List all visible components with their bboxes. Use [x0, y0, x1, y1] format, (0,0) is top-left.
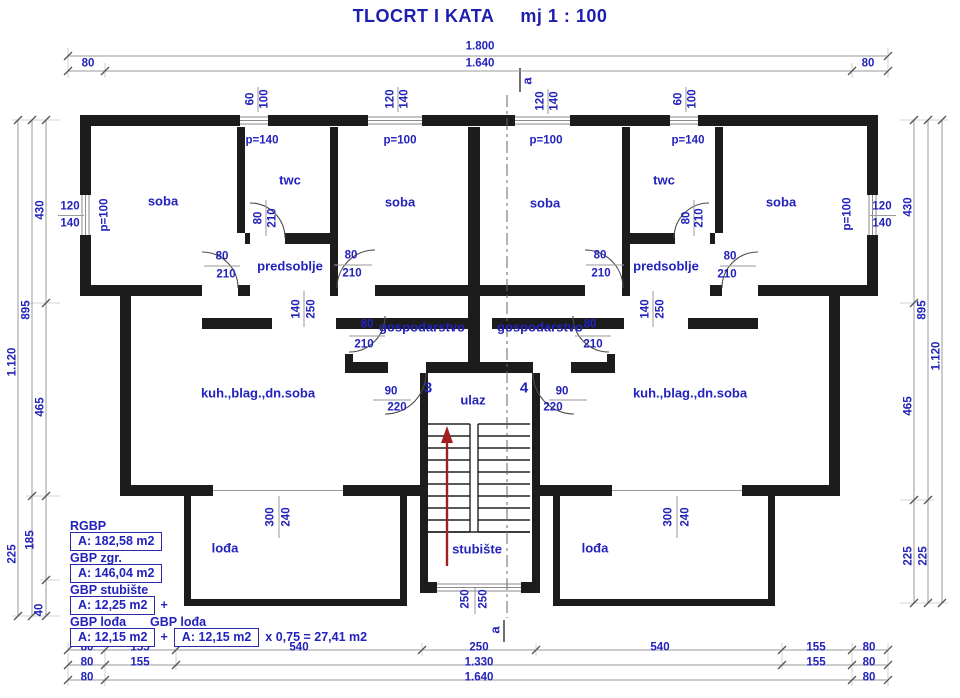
room-lodja-1: lođa	[212, 542, 239, 555]
door-entry4-220: 220	[543, 402, 562, 414]
open-lodja2-300: 300	[663, 507, 675, 526]
win-left-140: 140	[60, 218, 79, 230]
win-soba3-140: 140	[549, 91, 561, 110]
win-twc2-parapet: p=140	[672, 135, 705, 147]
gbp-stubiste-label: GBP stubište	[70, 583, 148, 597]
win-twc1-100: 100	[259, 89, 271, 108]
plus-sign-1: +	[160, 598, 167, 612]
door-soba2-80: 80	[345, 250, 358, 262]
gbp-lodja-label-2: GBP lođa	[150, 615, 206, 629]
room-soba-2: soba	[385, 196, 415, 209]
dim-top-80-r: 80	[862, 58, 875, 70]
apartment-number-3: 3	[424, 381, 432, 396]
apartment-number-4: 4	[520, 381, 528, 396]
win-soba3-120: 120	[535, 91, 547, 110]
door-soba3-210: 210	[591, 268, 610, 280]
section-line	[504, 68, 520, 642]
win-soba2-120: 120	[385, 89, 397, 108]
win-right-140: 140	[872, 218, 891, 230]
room-predsoblje-2: predsoblje	[633, 260, 699, 273]
win-twc1-60: 60	[245, 93, 257, 106]
door-gosp2-210: 210	[583, 339, 602, 351]
door-gosp1-80: 80	[361, 319, 374, 331]
door-gosp1-210: 210	[354, 339, 373, 351]
door-soba4-210: 210	[717, 269, 736, 281]
dim-bottom3-80-l: 80	[81, 672, 94, 684]
door-entry3-220: 220	[387, 402, 406, 414]
section-a-bottom: a	[489, 626, 502, 633]
room-soba-1: soba	[148, 195, 178, 208]
room-gospodarstvo-1: gospodarstvo	[379, 321, 465, 334]
win-twc2-100: 100	[687, 89, 699, 108]
room-gospodarstvo-2: gospodarstvo	[497, 321, 583, 334]
area-formula-suffix: x 0,75 = 27,41 m2	[265, 630, 367, 644]
dim-bottom2-80-l: 80	[81, 657, 94, 669]
dim-bottom1-250: 250	[469, 642, 488, 654]
dim-left-185: 185	[25, 530, 37, 549]
room-stubiste: stubište	[452, 543, 502, 556]
win-left-parapet: p=100	[99, 199, 111, 232]
dim-right-225-a: 225	[903, 546, 915, 565]
dim-bottom1-155-r: 155	[806, 642, 825, 654]
section-a-top: a	[521, 77, 534, 84]
room-kuh-2: kuh.,blag.,dn.soba	[633, 387, 747, 400]
door-twc2-80: 80	[681, 212, 693, 225]
win-soba3-parapet: p=100	[530, 135, 563, 147]
dim-right-465: 465	[903, 396, 915, 415]
door-entry3-90: 90	[385, 386, 398, 398]
win-soba2-140: 140	[399, 89, 411, 108]
door-soba1-210: 210	[216, 269, 235, 281]
win-right-parapet: p=100	[842, 198, 854, 231]
win-twc2-60: 60	[673, 93, 685, 106]
dim-top-80-l: 80	[82, 58, 95, 70]
dim-bottom1-80-r: 80	[863, 642, 876, 654]
pass-right-140: 140	[640, 299, 652, 318]
door-twc1-210: 210	[267, 208, 279, 227]
rgbp-value-box: A: 182,58 m2	[70, 532, 162, 551]
dim-left-225: 225	[7, 544, 19, 563]
door-gosp2-80: 80	[584, 319, 597, 331]
rgbp-label: RGBP	[70, 519, 106, 533]
dim-left-465: 465	[35, 397, 47, 416]
room-ulaz: ulaz	[460, 394, 485, 407]
door-soba1-80: 80	[216, 251, 229, 263]
win-twc1-parapet: p=140	[246, 135, 279, 147]
room-twc-2: twc	[653, 174, 675, 187]
door-soba2-210: 210	[342, 268, 361, 280]
dim-left-40: 40	[34, 604, 46, 617]
room-soba-4: soba	[766, 196, 796, 209]
door-soba4-80: 80	[724, 251, 737, 263]
pass-left-250: 250	[306, 299, 318, 318]
gbp-zgr-value-box: A: 146,04 m2	[70, 564, 162, 583]
gbp-lodja-value-box-2: A: 12,15 m2	[174, 628, 259, 647]
open-lodja2-240: 240	[680, 507, 692, 526]
plus-sign-2: +	[160, 630, 167, 644]
dim-left-430: 430	[35, 200, 47, 219]
win-left-120: 120	[60, 201, 79, 213]
room-twc-1: twc	[279, 174, 301, 187]
dim-left-895: 895	[21, 300, 33, 319]
dim-bottom2-80-r: 80	[863, 657, 876, 669]
pass-left-140: 140	[291, 299, 303, 318]
dim-bottom2-1330: 1.330	[465, 657, 494, 669]
dim-right-895: 895	[917, 300, 929, 319]
room-kuh-1: kuh.,blag.,dn.soba	[201, 387, 315, 400]
dim-bottom2-155-l: 155	[130, 657, 149, 669]
open-lodja1-300: 300	[265, 507, 277, 526]
door-twc2-210: 210	[694, 208, 706, 227]
dim-left-1120: 1.120	[7, 348, 19, 377]
room-lodja-2: lođa	[582, 542, 609, 555]
gbp-stubiste-value-box: A: 12,25 m2	[70, 596, 155, 615]
win-soba2-parapet: p=100	[384, 135, 417, 147]
dim-bottom3-80-r: 80	[863, 672, 876, 684]
pass-right-250: 250	[655, 299, 667, 318]
door-soba3-80: 80	[594, 250, 607, 262]
gbp-lodja-label-1: GBP lođa	[70, 615, 126, 629]
win-stair-250-b: 250	[478, 589, 490, 608]
room-predsoblje-1: predsoblje	[257, 260, 323, 273]
gbp-lodja-value-box-1: A: 12,15 m2	[70, 628, 155, 647]
room-soba-3: soba	[530, 197, 560, 210]
win-right-120: 120	[872, 201, 891, 213]
dim-top-1800: 1.800	[466, 41, 495, 53]
win-stair-250-a: 250	[460, 589, 472, 608]
dim-right-1120: 1.120	[931, 342, 943, 371]
dim-bottom1-540-r: 540	[650, 642, 669, 654]
gbp-zgr-label: GBP zgr.	[70, 551, 122, 565]
dim-bottom3-1640: 1.640	[465, 672, 494, 684]
dim-top-1640: 1.640	[466, 58, 495, 70]
dim-right-430: 430	[903, 197, 915, 216]
door-entry4-90: 90	[556, 386, 569, 398]
dim-bottom2-155-r: 155	[806, 657, 825, 669]
dim-right-225-b: 225	[918, 546, 930, 565]
open-lodja1-240: 240	[281, 507, 293, 526]
door-twc1-80: 80	[253, 212, 265, 225]
floor-plan-page: TLOCRT I KATAmj 1 : 100	[0, 0, 960, 698]
